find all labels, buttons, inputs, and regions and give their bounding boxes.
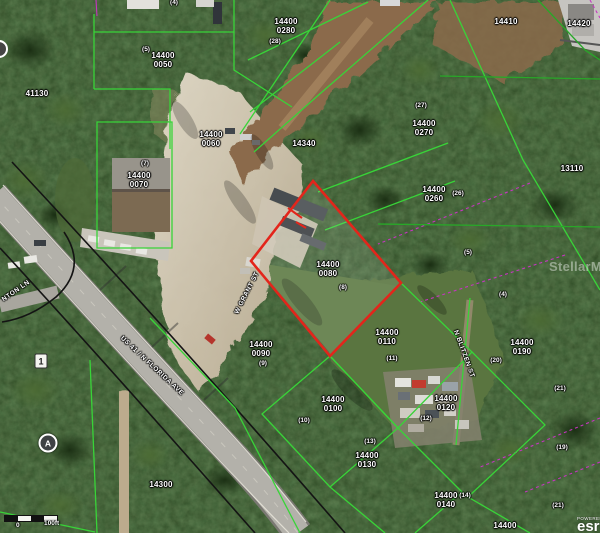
- stellar-mls-watermark: StellarMLS: [549, 259, 600, 274]
- aerial-parcel-map[interactable]: 1440000501440000601440000701440002801440…: [0, 0, 600, 533]
- scale-bar-segment: [31, 516, 44, 521]
- esri-logo: esri: [577, 518, 600, 533]
- map-marker-1: 1: [35, 354, 48, 369]
- aerial-imagery: [0, 0, 600, 533]
- scale-bar-segment: [5, 516, 18, 521]
- scale-bar-segment: [18, 516, 31, 521]
- map-marker-a: A: [39, 434, 58, 453]
- junkyard: [383, 366, 482, 448]
- scale-distance-label: 100ft: [44, 520, 59, 527]
- scale-zero-label: 0: [16, 522, 20, 529]
- edge-marker-circle: [0, 41, 7, 57]
